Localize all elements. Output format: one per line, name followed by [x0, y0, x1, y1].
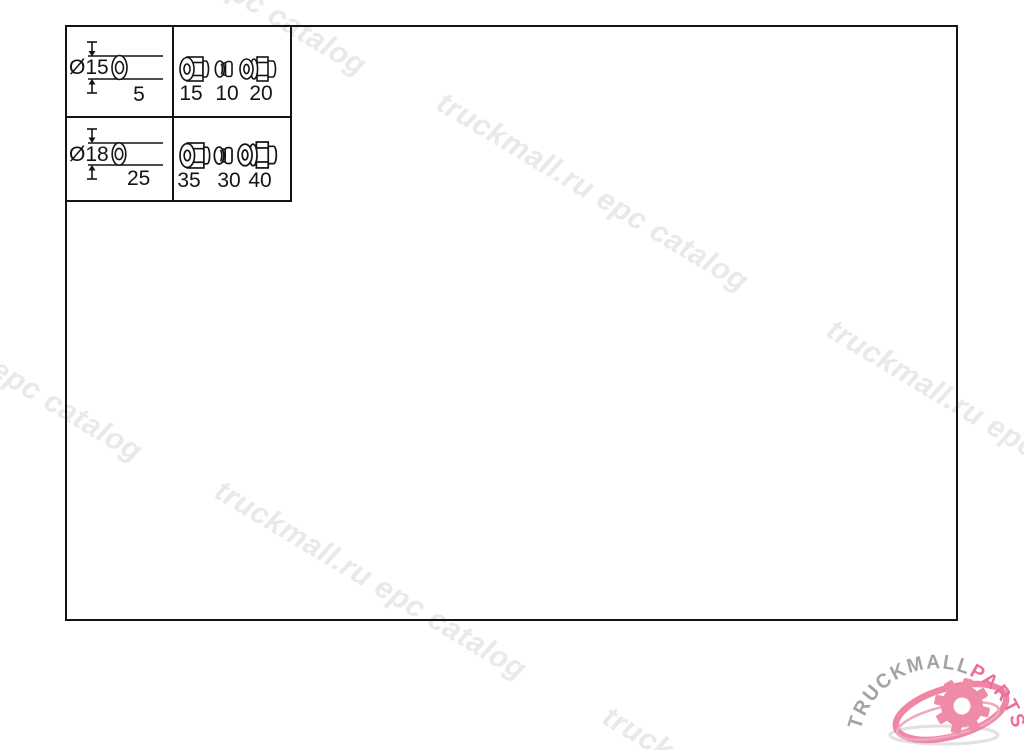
part-number-label: 20 — [246, 84, 276, 104]
diameter-label: Ø18 — [69, 145, 109, 165]
brand-logo: TRUCKMALLPARTS — [848, 646, 1024, 750]
union-fitting-drawing — [240, 57, 276, 81]
diameter-label: Ø15 — [69, 58, 109, 78]
length-label: 25 — [127, 169, 149, 189]
part-number-label: 30 — [214, 171, 244, 191]
part-number-label: 40 — [245, 171, 275, 191]
plug-fitting-drawing — [215, 61, 232, 77]
page: truckmall.ru epc catalog truckmall.ru ep… — [0, 0, 1024, 750]
part-number-label: 35 — [174, 171, 204, 191]
length-label: 5 — [128, 85, 150, 105]
nut-fitting-drawing — [180, 57, 209, 81]
nut-fitting-drawing — [180, 143, 210, 168]
plug-fitting-drawing — [214, 147, 232, 164]
part-number-label: 10 — [212, 84, 242, 104]
part-number-label: 15 — [176, 84, 206, 104]
union-fitting-drawing — [238, 142, 276, 168]
